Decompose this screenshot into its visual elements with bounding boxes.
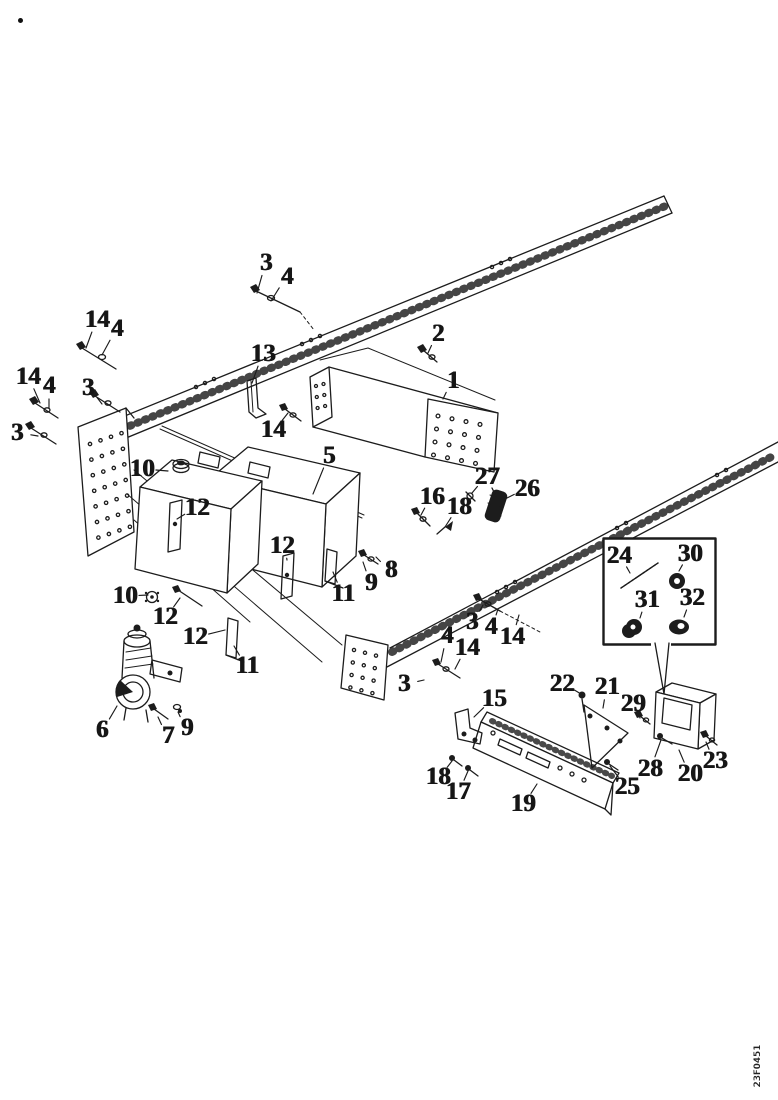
leader-line-3 <box>31 435 38 436</box>
box-1-left-plate <box>310 367 332 427</box>
bolt-8-9-right <box>358 549 378 564</box>
leader-line-7 <box>158 717 161 724</box>
leader-line-17 <box>464 771 468 780</box>
leader-line-19 <box>531 784 537 793</box>
bolt-cluster-left-a <box>76 341 120 412</box>
strap-13 <box>247 378 266 418</box>
leader-line-14 <box>282 413 288 420</box>
figure-code: 23F0451 <box>753 1044 763 1088</box>
leader-line-12 <box>174 598 180 607</box>
detail-inset-box <box>604 539 716 695</box>
leader-line-20 <box>679 750 684 762</box>
bolt-29 <box>634 710 650 724</box>
leader-line-16 <box>421 508 425 515</box>
leader-line-2 <box>428 346 431 353</box>
bolt-14-center <box>279 403 301 421</box>
parts-diagram-art <box>0 0 778 1100</box>
bolt-cluster-left-b <box>25 396 58 444</box>
leader-line-28 <box>655 740 661 757</box>
fuel-pump-assembly <box>116 625 182 723</box>
bolts-17-18 <box>449 755 478 776</box>
grommet-30 <box>669 573 685 589</box>
bushing-32 <box>669 620 689 635</box>
bolt-16 <box>411 507 430 526</box>
leader-line-21 <box>603 700 604 708</box>
bracket-11-left <box>226 618 244 662</box>
gusset-plate-21 <box>584 705 628 768</box>
support-channel-assembly <box>449 683 717 815</box>
fuel-tanks <box>135 447 378 662</box>
bolt-2 <box>417 344 437 362</box>
leader-line-8 <box>376 557 380 561</box>
diagram-stage: 3414431443132114105121216182726101212111… <box>0 0 778 1100</box>
tank-port-10-lower <box>145 592 159 603</box>
leader-line-22 <box>574 690 581 694</box>
callout-leader-lines <box>31 275 709 793</box>
pump-bolts-7-9 <box>148 703 182 719</box>
frame-rail-end-plate-left <box>78 408 134 556</box>
leader-line-4 <box>271 288 279 301</box>
box-assembly-1 <box>310 348 498 472</box>
leader-line-4 <box>441 649 444 662</box>
leader-line-14 <box>86 332 92 348</box>
rear-rail-end-plate <box>341 635 388 700</box>
filter-26 <box>483 488 508 524</box>
filler-neck-10 <box>173 460 189 473</box>
leader-line-4 <box>102 340 110 355</box>
bolt-cluster-top <box>250 284 314 330</box>
fitting-27 <box>466 492 475 501</box>
leader-line-18 <box>447 761 452 767</box>
front-frame-rail <box>88 196 672 450</box>
leader-line-6 <box>109 706 117 719</box>
leader-line-9 <box>363 562 366 571</box>
leader-line-14 <box>455 659 460 669</box>
leader-line-12 <box>209 630 225 634</box>
leader-line-3 <box>257 275 262 293</box>
leader-line-29 <box>639 716 640 718</box>
leader-line-3 <box>418 680 424 681</box>
leader-line-15 <box>474 708 484 717</box>
leader-line-27 <box>472 486 477 493</box>
scan-artifact-dot <box>18 18 23 23</box>
